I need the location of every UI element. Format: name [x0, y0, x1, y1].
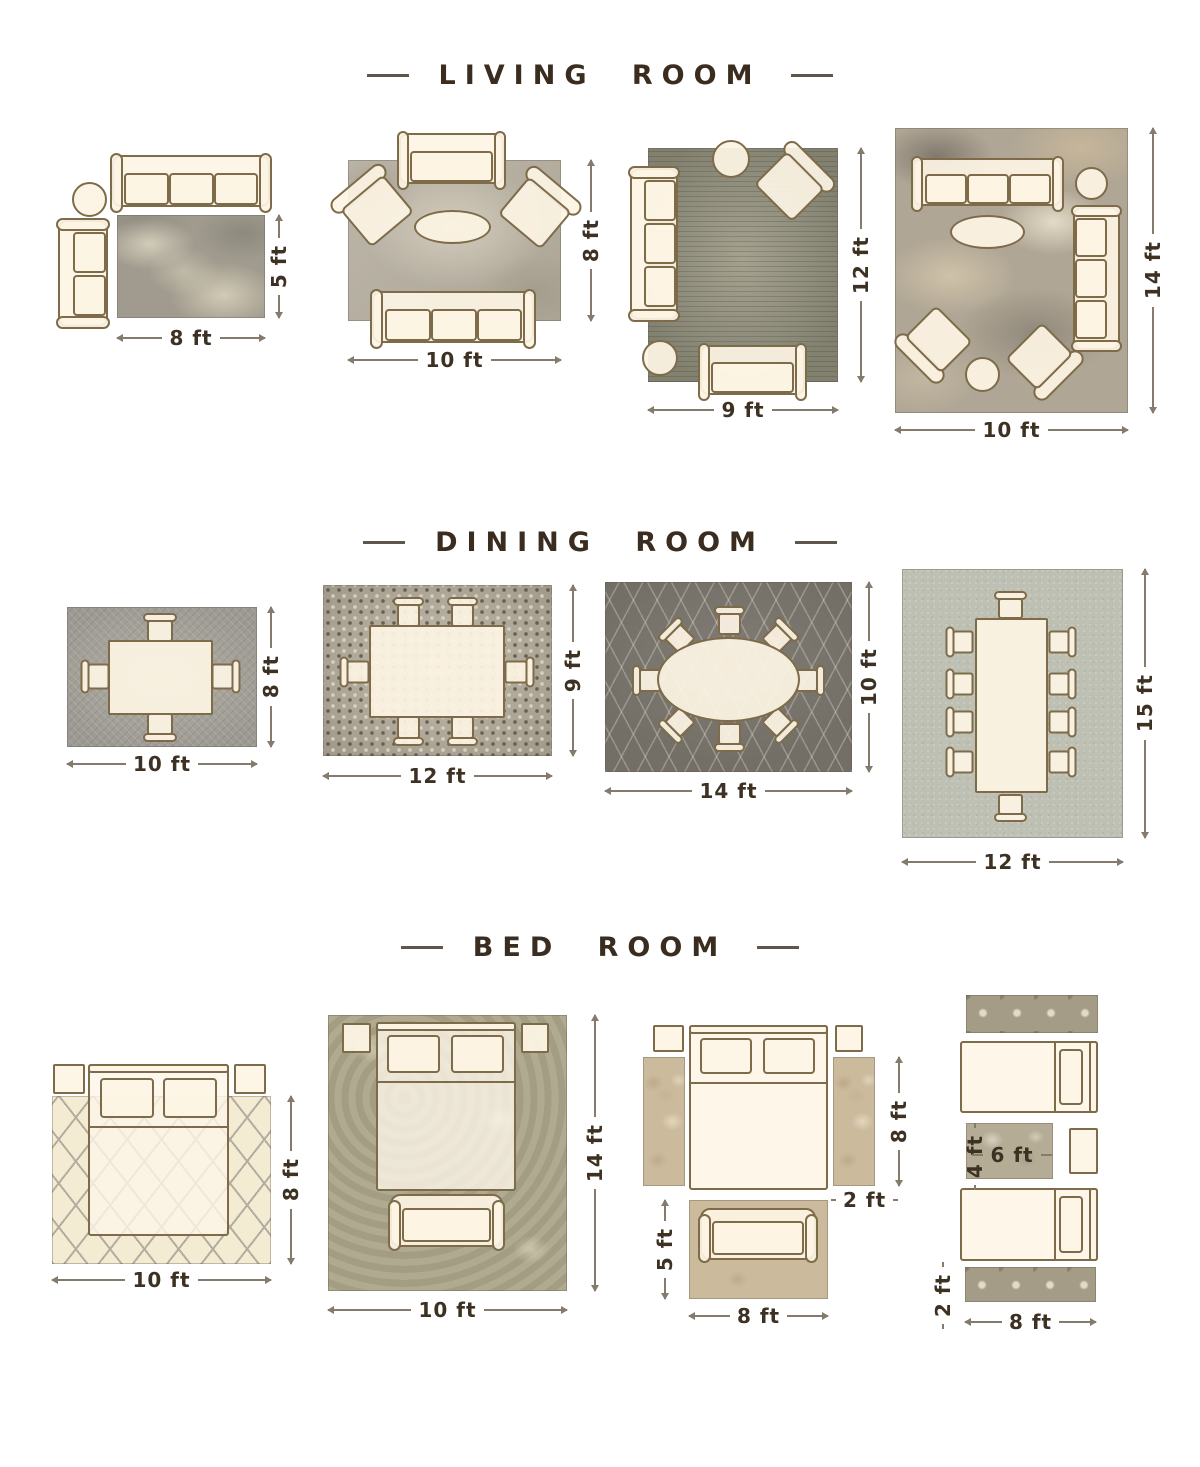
section-title-dining-room: DINING ROOM [0, 527, 1200, 558]
dimension-runner-width: 2 ft [930, 1262, 956, 1308]
dimension-width: 12 ft [902, 850, 1123, 874]
side-table [1075, 167, 1108, 200]
runner-rug [643, 1057, 685, 1186]
dimension-height: 14 ft [1140, 128, 1166, 413]
rug [117, 215, 265, 318]
dining-chair [81, 662, 110, 692]
dining-chair [505, 659, 535, 686]
twin-bed [960, 1041, 1098, 1113]
dining-chair [340, 659, 370, 686]
dimension-width: 10 ft [52, 1268, 271, 1292]
dimension-height: 8 ft [278, 1096, 304, 1264]
title-dash [757, 946, 799, 949]
dining-chair [946, 671, 974, 698]
dimension-width: 10 ft [895, 418, 1128, 442]
runner-rug [833, 1057, 875, 1186]
dimension-width: 8 ft [965, 1310, 1096, 1334]
dining-chair [449, 716, 476, 746]
title-dash [401, 946, 443, 949]
dining-chair [395, 597, 422, 627]
dining-chair [1049, 629, 1077, 656]
ottoman [965, 357, 1000, 392]
dimension-width: 10 ft [328, 1298, 567, 1322]
dimension-height: 14 ft [582, 1015, 608, 1291]
sofa [1073, 207, 1120, 350]
sofa [913, 158, 1062, 206]
dimension-width: 14 ft [605, 779, 852, 803]
dining-chair [1049, 749, 1077, 776]
dimension-height: 8 ft [578, 160, 604, 321]
nightstand [521, 1023, 549, 1053]
dining-chair [716, 723, 743, 752]
dining-chair [996, 794, 1025, 822]
nightstand [835, 1025, 863, 1052]
dimension-width: 8 ft [117, 326, 265, 350]
dining-chair [946, 709, 974, 736]
dining-table [975, 618, 1048, 793]
dimension-width: 9 ft [648, 398, 838, 422]
coffee-table [950, 215, 1025, 249]
bench [700, 1208, 816, 1260]
dimension-runner-width: 2 ft [831, 1188, 887, 1212]
title-dash [367, 74, 409, 77]
loveseat [58, 220, 108, 327]
dining-chair [796, 667, 825, 694]
nightstand [234, 1064, 266, 1094]
twin-bed [960, 1188, 1098, 1261]
nightstand [53, 1064, 85, 1094]
side-table [712, 140, 750, 178]
dimension-width: 10 ft [67, 752, 257, 776]
nightstand [342, 1023, 371, 1053]
dining-chair [395, 716, 422, 746]
dining-chair [946, 629, 974, 656]
dimension-height: 8 ft [258, 607, 284, 747]
sofa [372, 291, 534, 343]
title-dash [363, 541, 405, 544]
bed [376, 1022, 516, 1191]
dimension-height: 5 ft [652, 1200, 678, 1299]
dimension-accent-width: 6 ft [972, 1143, 1052, 1167]
dining-chair [1049, 709, 1077, 736]
dining-chair [1049, 671, 1077, 698]
section-title-living-room: LIVING ROOM [0, 60, 1200, 91]
dining-chair [145, 713, 175, 742]
sofa [630, 168, 678, 320]
nightstand [1069, 1128, 1098, 1174]
dining-chair [449, 597, 476, 627]
dimension-runner-length: 8 ft [886, 1057, 912, 1186]
dining-table [369, 625, 505, 718]
rug-size-guide-infographic: LIVING ROOM DINING ROOM BED ROOM 8 ft 5 … [0, 0, 1200, 1467]
oval-dining-table [657, 637, 800, 722]
dimension-height: 10 ft [856, 582, 882, 772]
section-title-text: DINING ROOM [435, 527, 765, 558]
title-dash [791, 74, 833, 77]
section-title-bed-room: BED ROOM [0, 932, 1200, 963]
side-table [72, 182, 107, 217]
bench [390, 1194, 503, 1247]
dining-chair [716, 606, 743, 635]
dimension-width: 10 ft [348, 348, 561, 372]
runner-rug [965, 1267, 1096, 1302]
dining-chair [946, 749, 974, 776]
dimension-width: 12 ft [323, 764, 552, 788]
dimension-height: 9 ft [560, 585, 586, 756]
ottoman [642, 340, 678, 376]
dimension-height: 12 ft [848, 148, 874, 382]
dimension-height: 15 ft [1132, 569, 1158, 838]
title-dash [795, 541, 837, 544]
dining-chair [145, 613, 175, 642]
bed [88, 1064, 229, 1236]
dimension-width: 8 ft [689, 1304, 828, 1328]
nightstand [653, 1025, 684, 1052]
dining-table [108, 640, 213, 715]
loveseat [700, 345, 805, 395]
dining-chair [996, 591, 1025, 619]
coffee-table [414, 210, 491, 244]
sofa [112, 155, 270, 207]
runner-rug [966, 995, 1098, 1033]
section-title-text: BED ROOM [473, 932, 727, 963]
loveseat [399, 133, 504, 184]
dimension-height: 5 ft [266, 215, 292, 318]
section-title-text: LIVING ROOM [439, 60, 762, 91]
bed [689, 1025, 828, 1190]
dining-chair [212, 662, 241, 692]
